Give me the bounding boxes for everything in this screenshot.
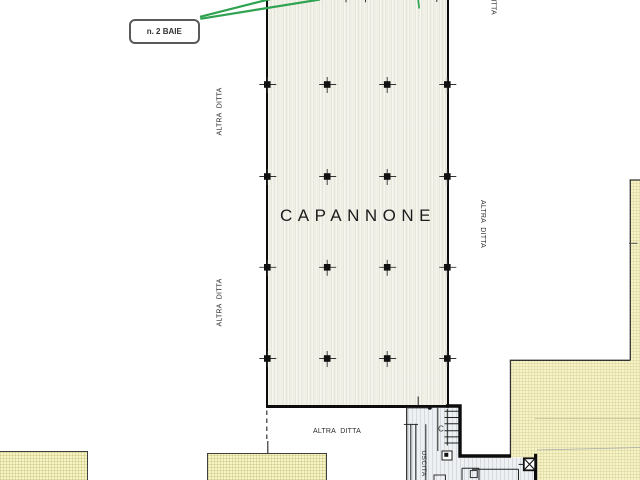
svg-text:C: C [438, 425, 444, 434]
